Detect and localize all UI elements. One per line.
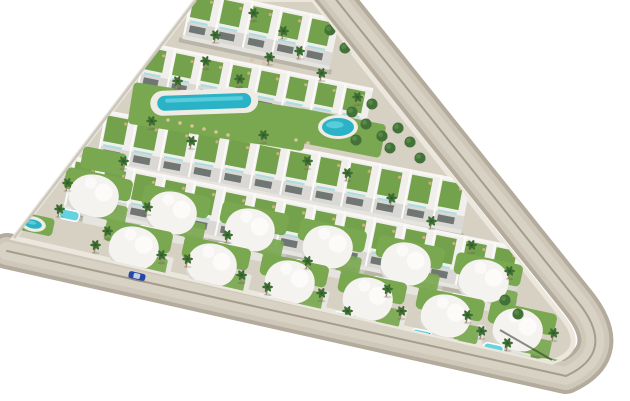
sun-lounger	[202, 127, 206, 131]
sun-lounger	[226, 133, 230, 137]
sun-lounger	[190, 124, 194, 128]
render-viewport	[0, 0, 630, 401]
sun-lounger	[214, 130, 218, 134]
pool-highlight	[326, 121, 344, 128]
sun-lounger	[262, 61, 266, 65]
communal-lap-pool	[150, 87, 259, 116]
sun-lounger	[306, 141, 310, 145]
sun-lounger	[178, 121, 182, 125]
sun-lounger	[166, 118, 170, 122]
communal-round-pool	[318, 115, 358, 139]
sun-lounger	[250, 58, 254, 62]
aerial-render-canvas	[0, 0, 630, 401]
sun-lounger	[294, 138, 298, 142]
